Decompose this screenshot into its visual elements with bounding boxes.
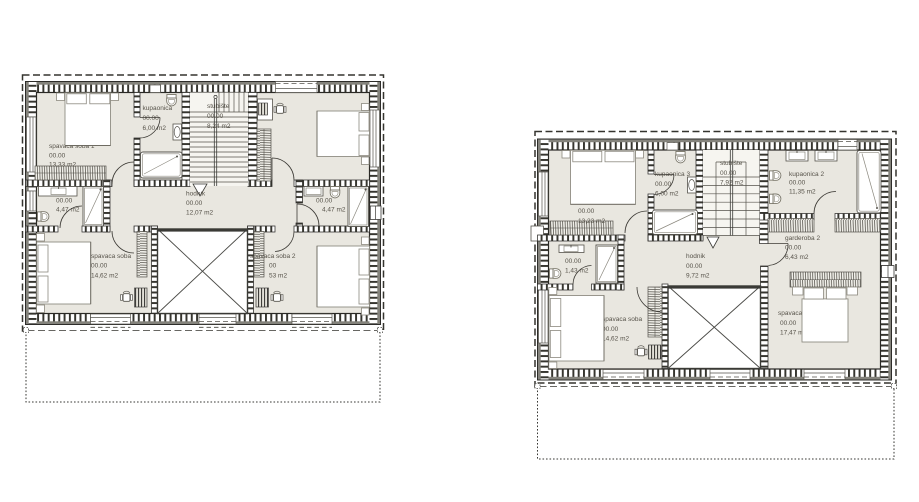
svg-text:7,92 m2: 7,92 m2: [720, 180, 744, 187]
svg-text:11,35 m2: 11,35 m2: [789, 189, 816, 196]
svg-text:8,24 m2: 8,24 m2: [207, 123, 231, 130]
svg-text:9,72 m2: 9,72 m2: [686, 273, 710, 280]
svg-text:garderoba 2: garderoba 2: [785, 235, 820, 242]
svg-text:kupaonica 2: kupaonica 2: [789, 171, 824, 178]
svg-text:6,00 m2: 6,00 m2: [143, 125, 167, 132]
svg-text:00: 00: [269, 263, 277, 270]
svg-text:00.00: 00.00: [565, 258, 582, 265]
svg-text:13,23 m2: 13,23 m2: [578, 218, 605, 225]
svg-text:spavaca soba: spavaca soba: [602, 316, 642, 323]
svg-text:spavaca soba: spavaca soba: [91, 253, 131, 260]
svg-text:00.00: 00.00: [91, 263, 108, 270]
svg-text:00.00: 00.00: [720, 170, 737, 177]
svg-text:00.00: 00.00: [56, 198, 73, 205]
svg-text:00.00: 00.00: [143, 115, 160, 122]
svg-text:14,62 m2: 14,62 m2: [602, 336, 629, 343]
svg-text:spavaca soba 2: spavaca soba 2: [250, 253, 296, 260]
svg-text:00.00: 00.00: [686, 263, 703, 270]
svg-text:00.00: 00.00: [789, 180, 806, 187]
svg-text:14,62 m2: 14,62 m2: [91, 273, 118, 280]
svg-text:00.00: 00.00: [186, 200, 203, 207]
svg-text:kupaonica: kupaonica: [143, 105, 173, 112]
svg-text:00.00: 00.00: [207, 113, 224, 120]
svg-text:hodnik: hodnik: [686, 253, 706, 260]
svg-text:4,47 m2: 4,47 m2: [56, 207, 80, 214]
svg-text:13,33 m2: 13,33 m2: [49, 162, 76, 169]
svg-text:4,47 m2: 4,47 m2: [322, 207, 346, 214]
svg-text:00.00: 00.00: [780, 320, 797, 327]
svg-text:hodnik: hodnik: [186, 191, 206, 198]
svg-text:6,43 m2: 6,43 m2: [785, 254, 809, 261]
svg-text:53 m2: 53 m2: [269, 273, 287, 280]
svg-text:00.00: 00.00: [49, 153, 66, 160]
svg-text:stubište: stubište: [720, 160, 743, 167]
svg-text:00.00: 00.00: [578, 208, 595, 215]
svg-text:00.00: 00.00: [316, 198, 333, 205]
svg-text:stubište: stubište: [207, 103, 230, 110]
svg-text:00.00: 00.00: [602, 326, 619, 333]
svg-text:12,07 m2: 12,07 m2: [186, 210, 213, 217]
